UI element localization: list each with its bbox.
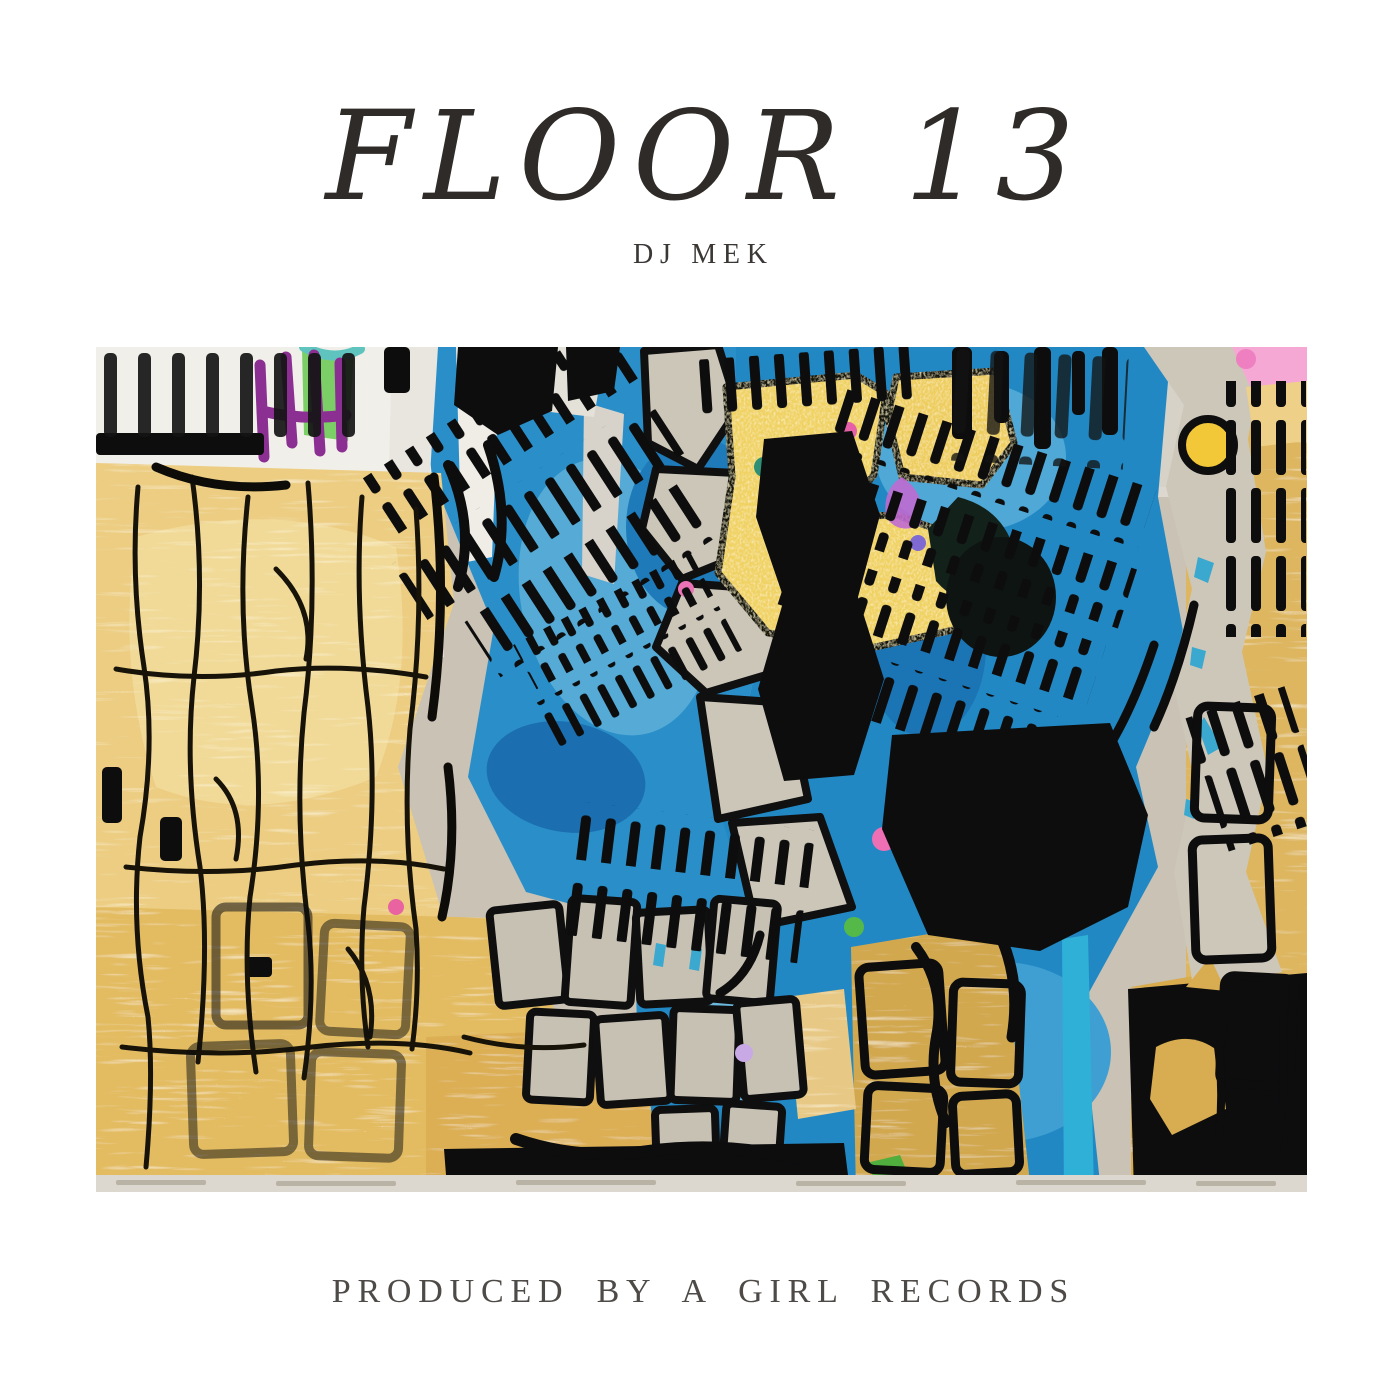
credit-line: PRODUCED BY A GIRL RECORDS xyxy=(0,1272,1400,1312)
album-title: FLOOR 13 xyxy=(0,92,1400,222)
album-artwork xyxy=(96,347,1307,1192)
abstract-painting xyxy=(96,347,1307,1192)
album-cover-page: FLOOR 13 DJ MEK xyxy=(0,0,1400,1400)
artist-name: DJ MEK xyxy=(0,238,1400,272)
